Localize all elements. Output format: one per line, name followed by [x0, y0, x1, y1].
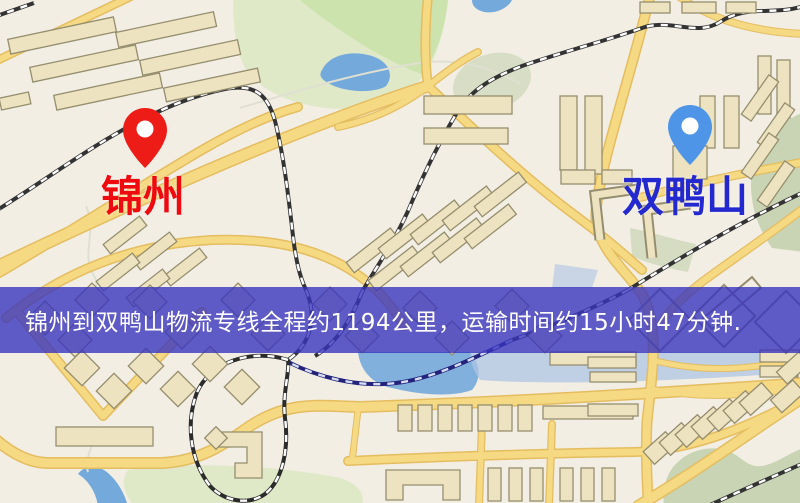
map-canvas[interactable] [0, 0, 800, 503]
route-info-text: 锦州到双鸭山物流专线全程约1194公里，运输时间约15小时47分钟. [0, 303, 741, 337]
map-screenshot: 锦州 双鸭山 锦州到双鸭山物流专线全程约1194公里，运输时间约15小时47分钟… [0, 0, 800, 503]
destination-label: 双鸭山 [622, 176, 748, 218]
route-info-banner: 锦州到双鸭山物流专线全程约1194公里，运输时间约15小时47分钟. [0, 287, 800, 353]
origin-label: 锦州 [101, 176, 185, 218]
